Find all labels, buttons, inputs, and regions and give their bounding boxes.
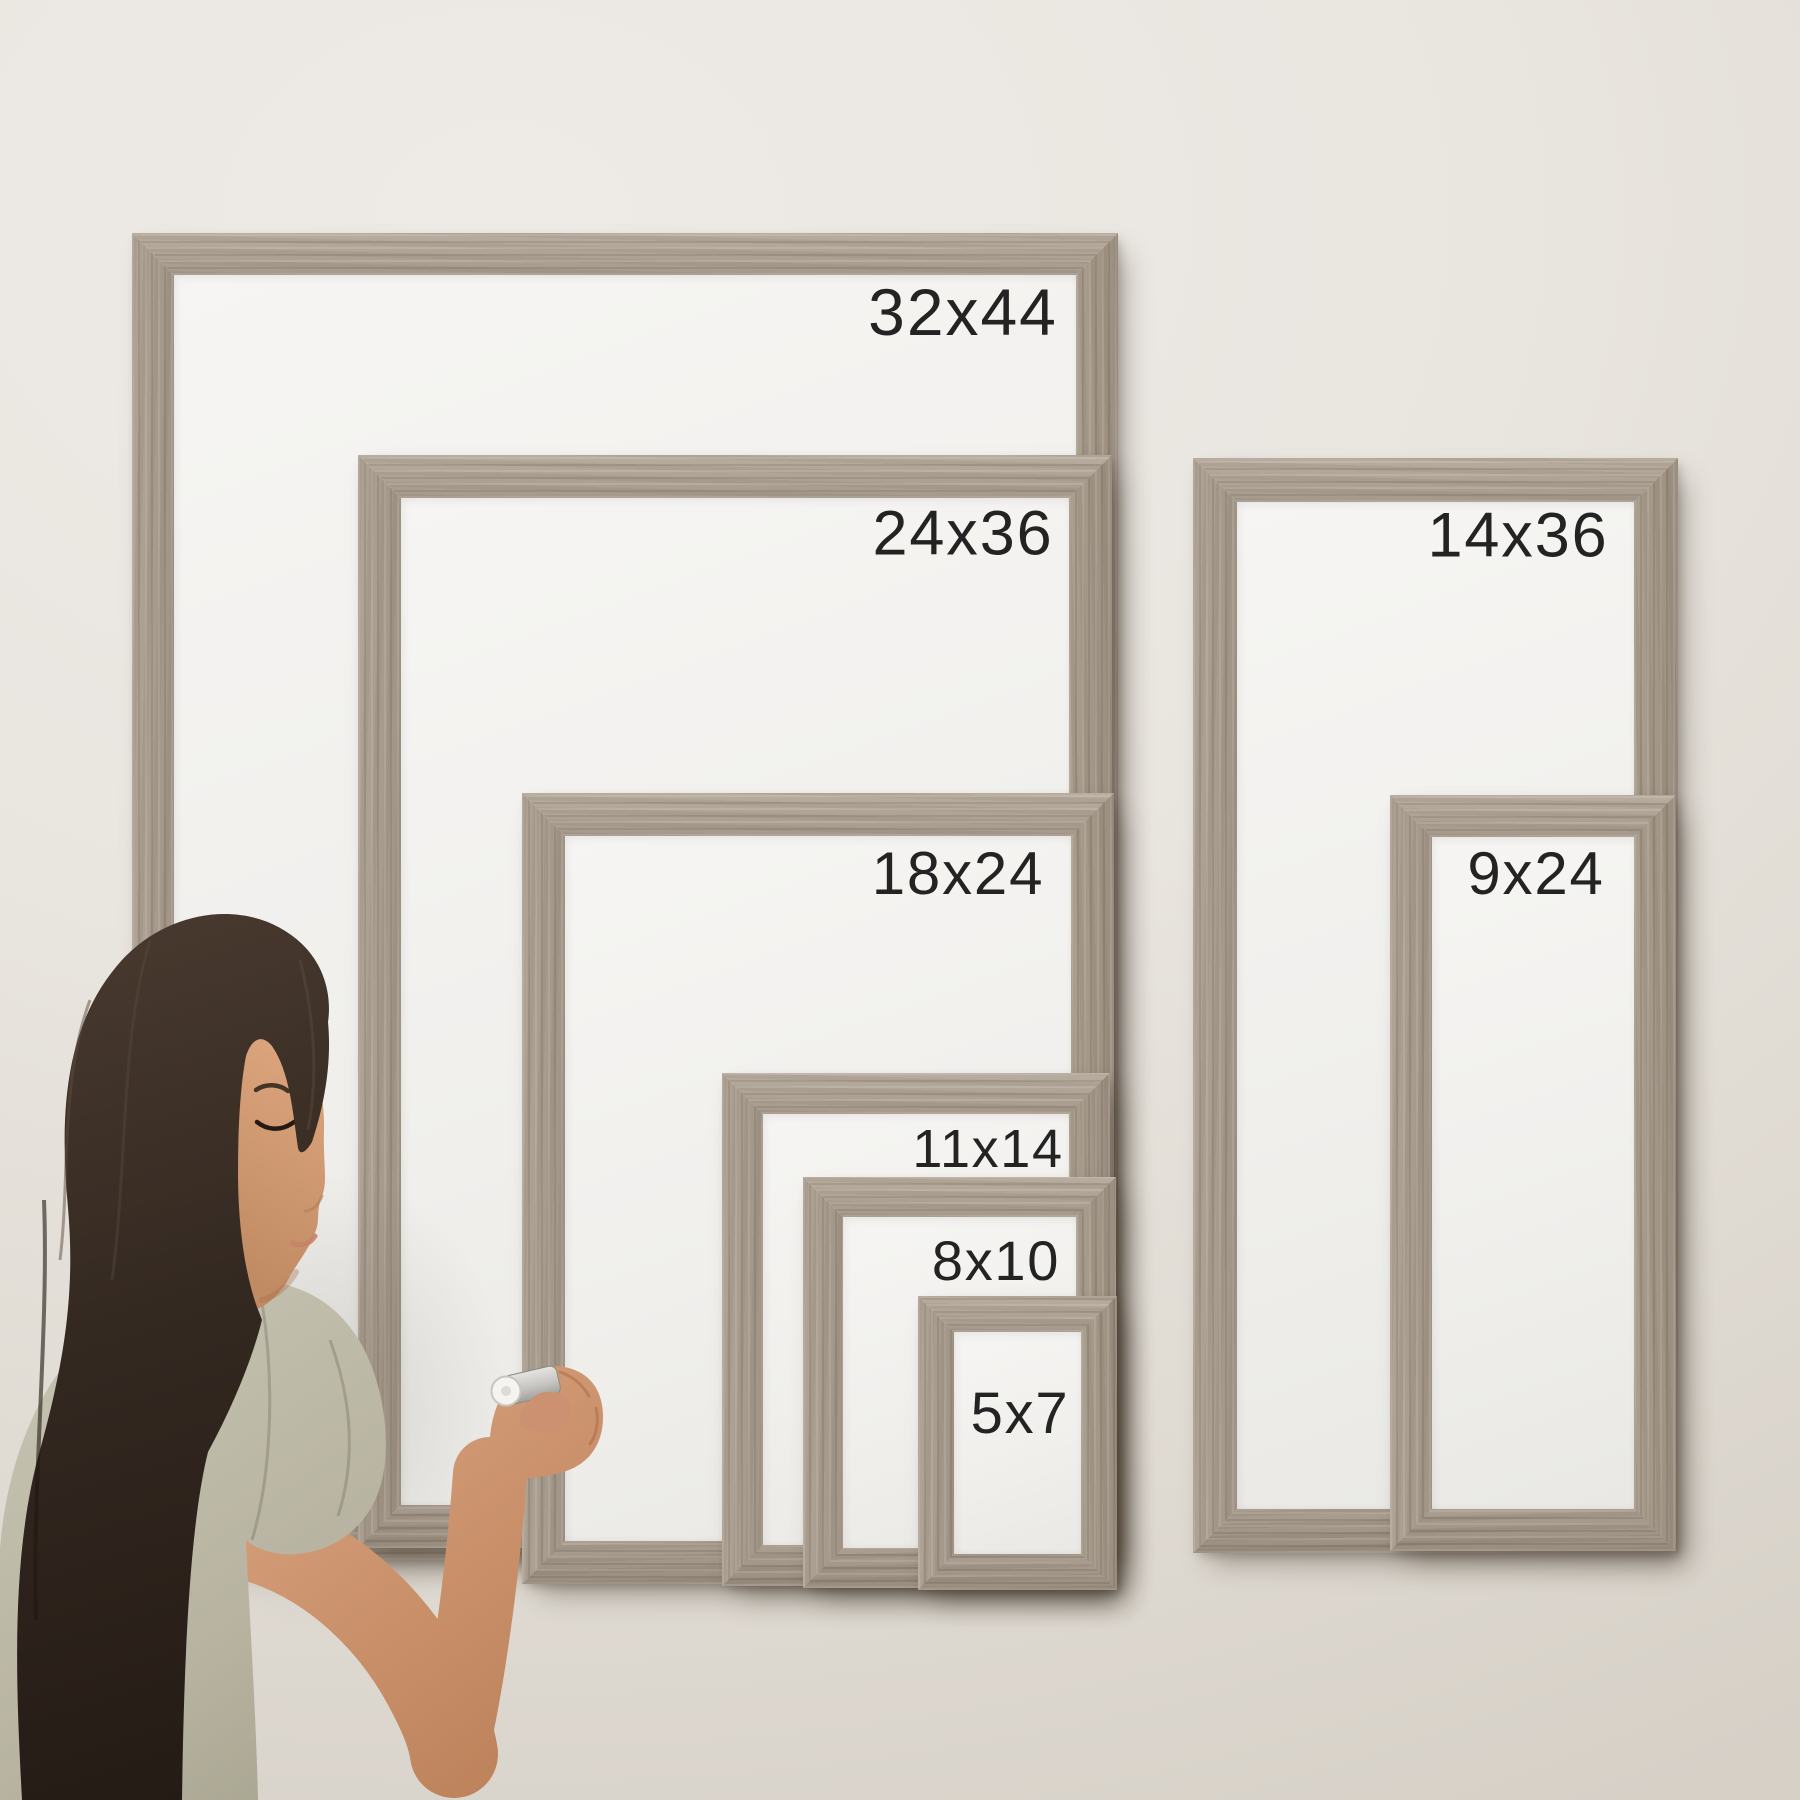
size-label-8x10: 8x10 bbox=[932, 1233, 1060, 1289]
frame-edge-top bbox=[722, 1073, 1110, 1114]
frame-9x24: 9x24 bbox=[1390, 795, 1676, 1551]
frame-edge-left bbox=[722, 1073, 763, 1586]
frame-edge-top bbox=[803, 1177, 1116, 1217]
woman-forearm bbox=[452, 1474, 490, 1750]
frame-edge-left bbox=[1390, 795, 1432, 1551]
frame-edge-top bbox=[1390, 795, 1676, 837]
frame-edge-top bbox=[132, 233, 1118, 275]
whiteboard-surface-9x24 bbox=[1429, 834, 1637, 1512]
frame-edge-top bbox=[522, 793, 1114, 836]
frame-edge-top bbox=[358, 455, 1112, 498]
size-label-5x7: 5x7 bbox=[971, 1385, 1070, 1443]
size-label-18x24: 18x24 bbox=[872, 844, 1044, 904]
frame-edge-left bbox=[1193, 458, 1237, 1553]
size-label-9x24: 9x24 bbox=[1467, 844, 1604, 904]
frame-edge-right bbox=[1081, 1296, 1117, 1590]
woman-writing-on-whiteboard bbox=[0, 880, 680, 1800]
size-label-14x36: 14x36 bbox=[1427, 505, 1608, 568]
frame-edge-bottom bbox=[1390, 1509, 1676, 1551]
frame-edge-left bbox=[918, 1296, 954, 1590]
frame-edge-top bbox=[1193, 458, 1678, 502]
size-label-24x36: 24x36 bbox=[872, 503, 1053, 566]
size-label-11x14: 11x14 bbox=[912, 1122, 1063, 1176]
product-size-comparison-photo: 32x4424x3618x2411x148x105x714x369x24 bbox=[0, 0, 1800, 1800]
frame-edge-left bbox=[803, 1177, 843, 1588]
size-label-32x44: 32x44 bbox=[868, 279, 1058, 345]
frame-edge-right bbox=[1634, 795, 1676, 1551]
marker-cap-center bbox=[501, 1386, 511, 1396]
frame-5x7: 5x7 bbox=[918, 1296, 1117, 1590]
